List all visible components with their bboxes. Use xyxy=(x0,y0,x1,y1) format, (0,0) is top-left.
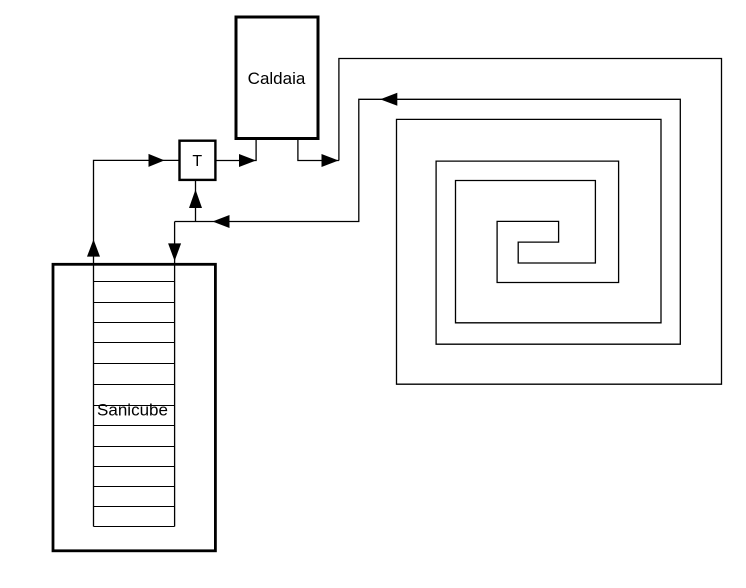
svg-text:Sanicube: Sanicube xyxy=(97,401,168,420)
svg-text:T: T xyxy=(192,153,202,170)
svg-text:Caldaia: Caldaia xyxy=(248,69,306,88)
